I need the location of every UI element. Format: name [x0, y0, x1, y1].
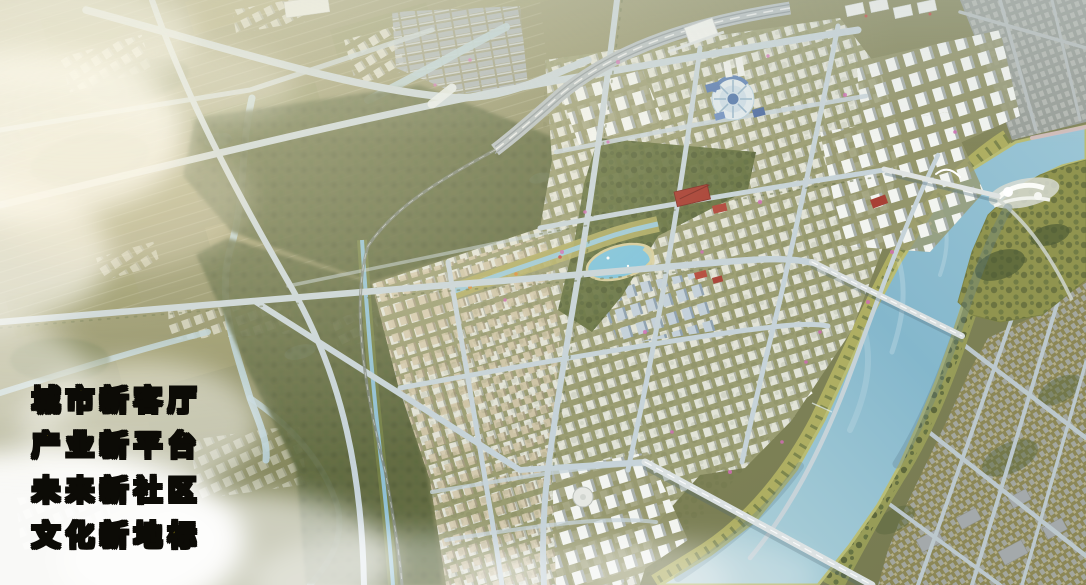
masterplan-rendering: 城市新客厅 产业新平台 未来新社区 文化新地标: [0, 0, 1086, 585]
slogan-line-2: 产业新平台: [32, 423, 202, 468]
slogan-overlay: 城市新客厅 产业新平台 未来新社区 文化新地标: [32, 378, 202, 558]
slogan-line-1: 城市新客厅: [32, 378, 202, 423]
slogan-line-3: 未来新社区: [32, 468, 202, 513]
slogan-line-4: 文化新地标: [32, 513, 202, 558]
